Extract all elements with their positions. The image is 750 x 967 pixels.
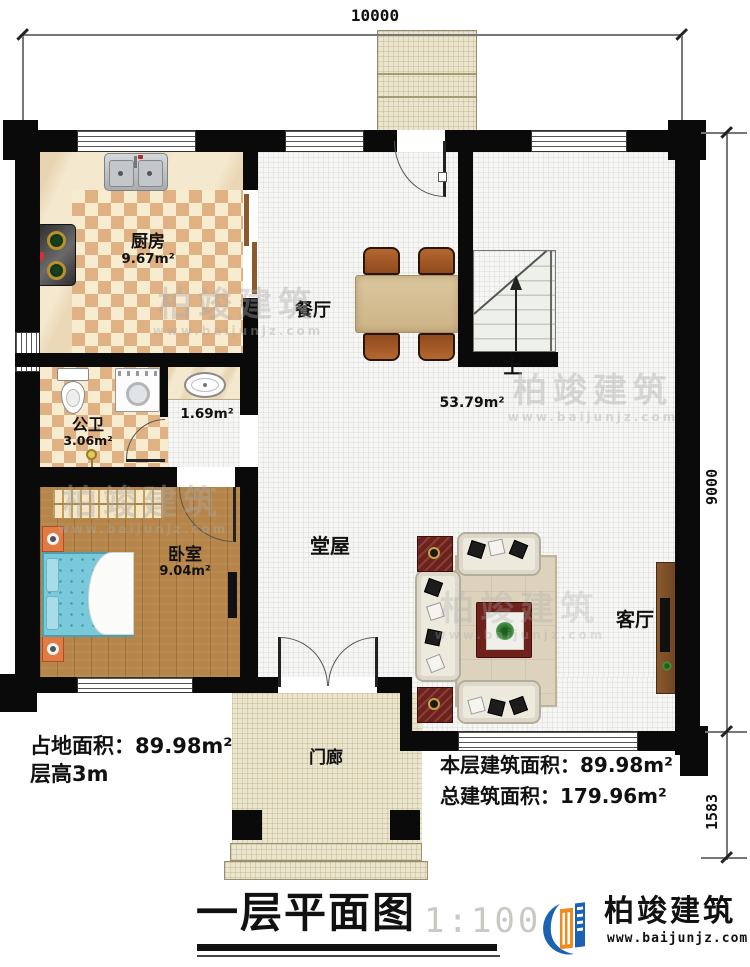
sofa-pillow [467, 540, 486, 559]
washer-door [126, 382, 150, 406]
hall-area: 53.79m² [436, 396, 508, 411]
sofa-pillow [488, 539, 506, 557]
bed-pillow [46, 558, 59, 592]
stairs-up-label: 上 [500, 357, 526, 378]
sofa-pillow [509, 696, 528, 715]
bedroom-window [77, 677, 193, 693]
total-area-note: 总建筑面积：179.96m² [440, 786, 667, 808]
step-line [378, 96, 476, 98]
sliding-door-panel [252, 242, 257, 294]
nightstand [42, 526, 64, 552]
kitchen-label: 厨房 [108, 233, 188, 251]
porch-step-1 [230, 843, 422, 861]
brand-name: 柏竣建筑 [604, 896, 736, 928]
sink-drain [147, 171, 152, 176]
nightstand-decor [47, 643, 59, 655]
end-table-medallion [428, 547, 440, 559]
wall-top [445, 130, 531, 152]
floor-area-note: 本层建筑面积：89.98m² [440, 755, 673, 777]
sofa-pillow [424, 578, 443, 597]
plan-title: 一层平面图 [196, 890, 416, 935]
sofa-pillow [487, 698, 505, 716]
porch-step-2 [224, 861, 428, 880]
dim-right-line [726, 133, 728, 860]
hall-label: 堂屋 [299, 536, 361, 558]
double-bed [42, 552, 134, 637]
logo-graphic [538, 896, 598, 958]
staircase [473, 250, 556, 352]
nightstand-decor [47, 533, 59, 545]
brand-website: www.baijunjz.com [607, 932, 748, 946]
sink-drain [118, 171, 123, 176]
bathroom-door-leaf [126, 459, 165, 462]
bed-pillow [46, 596, 59, 630]
sofa-left [415, 570, 461, 682]
faucet-handle [138, 155, 143, 159]
sofa-bottom [457, 680, 541, 724]
logo-buildings [560, 902, 585, 949]
wall-washroom-right [240, 353, 258, 415]
wall-bedroom-top [15, 467, 177, 487]
dining-chair [363, 333, 400, 361]
kitchen-area: 9.67m² [108, 252, 188, 267]
dim-ext-line [22, 36, 24, 120]
washroom-area: 1.69m² [177, 407, 237, 422]
dining-label: 餐厅 [283, 301, 343, 320]
brand-logo-icon [538, 896, 598, 958]
kitchen-sink [104, 153, 168, 191]
wall-bedroom-right [240, 467, 258, 693]
bedroom-tv [228, 572, 237, 618]
dim-top-line [22, 34, 682, 36]
wall-bottom-right [400, 731, 458, 751]
dim-top-value: 10000 [320, 6, 430, 25]
rear-steps [377, 30, 477, 132]
wall-left [15, 130, 40, 693]
end-table-medallion [428, 698, 440, 710]
dim-right-main-value: 9000 [703, 425, 721, 505]
wall-stairs-left [458, 152, 473, 367]
wall-top [196, 130, 285, 152]
hall-window [531, 130, 627, 152]
dining-chair [418, 333, 455, 361]
wall-right [675, 130, 700, 755]
kitchen-window [77, 130, 196, 152]
sofa-pillow [467, 696, 485, 714]
title-underline-thick [197, 944, 497, 951]
stove-knob [40, 252, 44, 261]
wall-kitchen-bottom [15, 353, 258, 367]
wardrobe [52, 489, 164, 519]
living-window [458, 731, 638, 751]
sofa-pillow [425, 629, 443, 647]
sofa-pillow [509, 540, 529, 560]
toilet-tank [57, 368, 89, 381]
porch-column [390, 810, 420, 840]
plant [494, 620, 516, 642]
dim-right-lower-value: 1583 [703, 766, 721, 830]
sliding-door-panel [244, 194, 249, 246]
nightstand [42, 636, 64, 662]
end-table [417, 687, 453, 723]
bedroom-label: 卧室 [150, 546, 220, 564]
wall-bottom-left [193, 677, 278, 693]
bed-duvet [88, 552, 134, 635]
wash-basin [184, 372, 226, 398]
title-underline-thin [197, 955, 500, 957]
wall-bath-washroom [160, 367, 168, 417]
burner [47, 231, 66, 250]
dim-ext-line [681, 36, 683, 120]
wall-kitchen-right [243, 152, 258, 190]
plant-small [662, 661, 672, 671]
bathroom-area: 3.06m² [53, 434, 123, 448]
sink-faucet [134, 156, 137, 168]
sofa-top [457, 532, 541, 576]
stove [36, 224, 76, 286]
washer-panel [118, 371, 157, 376]
dining-table [355, 275, 460, 333]
step-line [378, 73, 476, 75]
toilet-seat [66, 389, 80, 407]
dining-window [285, 130, 364, 152]
porch-label: 门廊 [299, 749, 353, 767]
coffee-table [476, 602, 532, 658]
sofa-pillow [426, 602, 445, 621]
floor-height-note: 层高3m [30, 763, 109, 786]
end-table [417, 536, 453, 572]
bedroom-area: 9.04m² [150, 565, 220, 579]
wall-top [364, 130, 397, 152]
sofa-pillow [426, 654, 446, 674]
basin-drain [203, 383, 207, 387]
burner [47, 261, 66, 280]
stair-stringer [550, 251, 552, 351]
floor-plan-canvas: 厨房 9.67m² 公卫 3.06m² 1.69m² 卧室 9.04m² 餐厅 … [0, 0, 750, 967]
living-label: 客厅 [605, 610, 665, 631]
kitchen-door-opening [243, 190, 258, 298]
dining-chair [363, 247, 400, 275]
plan-scale: 1:100 [424, 901, 541, 941]
floor-drain [86, 449, 97, 460]
washing-machine [115, 368, 160, 412]
porch-column [232, 810, 262, 840]
pilaster-bottom-left [0, 674, 37, 712]
bathroom-label: 公卫 [53, 416, 123, 433]
kitchen-floor [72, 190, 243, 353]
stair-arrow-head [510, 275, 522, 290]
toilet [56, 368, 90, 416]
dining-chair [418, 247, 455, 275]
land-area-note: 占地面积：89.98m² [30, 735, 233, 758]
stair-arrow-line [515, 289, 517, 351]
wardrobe-rail [53, 503, 163, 505]
